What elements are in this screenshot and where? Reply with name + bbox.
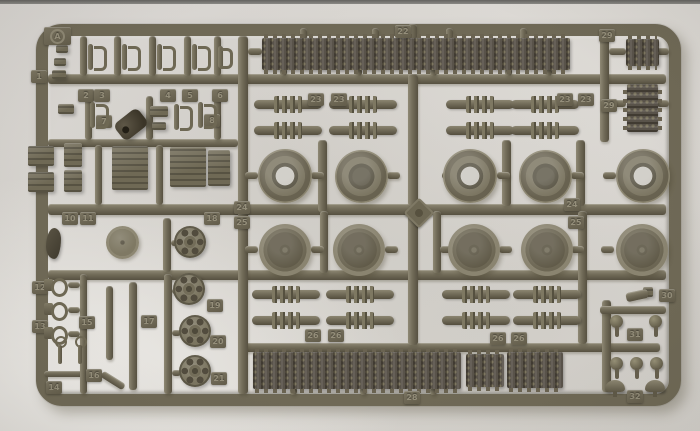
part-number-tab: 10	[62, 212, 78, 225]
sprocket-wheel	[179, 315, 211, 347]
part-number-tab: 32	[627, 390, 643, 403]
road-wheel-dish	[333, 224, 385, 276]
ball-pin-part	[610, 357, 623, 370]
small-bracket-part	[120, 42, 142, 72]
part-number-tab: 24	[234, 201, 250, 214]
stowage-box-part	[170, 147, 206, 187]
sprue-runner	[146, 96, 153, 140]
sprue-runner	[320, 211, 328, 273]
part-number-tab: 23	[308, 93, 324, 106]
ball-pin-part	[630, 357, 643, 370]
track-section	[262, 38, 570, 70]
dome-cap-part	[605, 380, 625, 392]
stowage-box-part	[152, 122, 166, 130]
part-number-tab: 11	[80, 212, 96, 225]
track-section	[507, 352, 563, 388]
road-wheel-dish	[616, 224, 668, 276]
sprue-runner	[609, 48, 626, 55]
suspension-arm	[513, 290, 581, 299]
part-number-tab: 23	[331, 93, 347, 106]
track-section	[253, 352, 461, 389]
suspension-arm	[254, 126, 322, 135]
stowage-box-part	[56, 45, 68, 53]
sprocket-wheel	[179, 355, 211, 387]
part-number-tab: 26	[305, 329, 321, 342]
road-wheel-outer	[443, 149, 497, 203]
loop-pin-part	[74, 336, 85, 364]
part-number-tab: 14	[46, 381, 62, 394]
dome-cap-part	[645, 380, 665, 392]
sprue-runner	[245, 172, 258, 179]
part-number-tab: 25	[568, 216, 584, 229]
sprue-runner	[95, 145, 102, 205]
part-number-tab: 22	[395, 25, 411, 38]
part-number-tab: 4	[160, 89, 176, 102]
sprue-letter: A	[50, 29, 65, 44]
sprue-runner	[600, 306, 666, 314]
sprue-runner	[603, 172, 616, 179]
sprue-letter-tab: A	[44, 27, 71, 45]
sprue-runner	[600, 36, 609, 142]
small-bracket-part	[196, 100, 218, 130]
stowage-box-part	[28, 146, 54, 166]
small-bracket-part	[172, 102, 194, 132]
idler-wheel	[106, 226, 139, 259]
suspension-arm	[329, 126, 397, 135]
rod-part	[106, 286, 113, 360]
sprue-runner	[156, 145, 163, 205]
rod-part	[129, 282, 137, 390]
part-number-tab: 19	[207, 299, 223, 312]
ball-pin-part	[649, 315, 662, 328]
part-number-tab: 21	[211, 372, 227, 385]
part-number-tab: 24	[564, 198, 580, 211]
sprue-photo-scene: A123456789101118121314151617192021222323…	[0, 0, 700, 431]
sprue-runner	[164, 274, 172, 394]
part-number-tab: 17	[141, 315, 157, 328]
stowage-box-part	[150, 106, 168, 117]
part-number-tab: 16	[86, 369, 102, 382]
road-wheel-outer	[519, 150, 572, 203]
small-bracket-part	[86, 42, 108, 72]
loop-pin-part	[54, 336, 65, 364]
part-number-tab: 26	[511, 332, 527, 345]
sprue-runner	[248, 48, 262, 55]
ball-pin-part	[650, 357, 663, 370]
part-number-tab: 31	[627, 328, 643, 341]
stowage-box-part	[112, 146, 148, 190]
suspension-arm	[326, 290, 394, 299]
stowage-box-part	[64, 143, 82, 167]
sprue-runner	[497, 172, 510, 179]
part-number-tab: 23	[578, 93, 594, 106]
suspension-arm	[252, 316, 320, 325]
road-wheel-outer	[616, 149, 670, 203]
sprue-runner	[499, 246, 512, 253]
suspension-arm	[442, 290, 510, 299]
road-wheel-outer	[258, 149, 312, 203]
sprue-runner	[163, 218, 171, 272]
sprue-runner	[601, 246, 614, 253]
part-number-tab: 25	[234, 216, 250, 229]
part-number-tab: 30	[659, 289, 675, 302]
suspension-arm	[446, 100, 514, 109]
suspension-arm	[511, 126, 579, 135]
part-number-tab: 1	[31, 70, 47, 83]
part-number-tab: 18	[204, 212, 220, 225]
road-wheel-dish	[521, 224, 573, 276]
sprue-runner	[571, 172, 584, 179]
sprue-runner	[578, 211, 587, 344]
track-section	[466, 354, 504, 387]
suspension-arm	[326, 316, 394, 325]
stowage-box-part	[64, 170, 82, 192]
suspension-arm	[252, 290, 320, 299]
road-wheel-outer	[335, 150, 388, 203]
stowage-box-part	[54, 58, 66, 66]
sprue-runner	[387, 172, 400, 179]
road-wheel-dish	[259, 224, 311, 276]
suspension-arm	[442, 316, 510, 325]
sprue-runner	[311, 172, 324, 179]
stowage-box-part	[28, 172, 54, 192]
tow-shackle-part	[44, 276, 70, 296]
stowage-box-part	[58, 104, 74, 114]
sprue-runner	[245, 246, 258, 253]
road-wheel-dish	[448, 224, 500, 276]
sprue-runner	[311, 246, 324, 253]
part-number-tab: 26	[490, 332, 506, 345]
part-number-tab: 20	[210, 335, 226, 348]
part-number-tab: 26	[328, 329, 344, 342]
small-bracket-part	[216, 44, 234, 70]
small-bracket-part	[88, 100, 110, 130]
suspension-arm	[513, 316, 581, 325]
stowage-box-part	[208, 150, 230, 186]
sprue-runner	[408, 215, 418, 345]
photo-edge-strip	[0, 0, 700, 4]
track-section	[627, 84, 658, 132]
part-number-tab: 29	[601, 99, 617, 112]
part-number-tab: 23	[557, 93, 573, 106]
sprocket-wheel	[173, 273, 205, 305]
sprue-runner	[385, 246, 398, 253]
small-bracket-part	[155, 42, 177, 72]
stowage-box-part	[52, 70, 66, 79]
ball-pin-part	[610, 315, 623, 328]
sprocket-wheel	[174, 226, 206, 258]
part-number-tab: 15	[79, 316, 95, 329]
part-number-tab: 28	[404, 391, 420, 404]
sprue-runner	[433, 211, 441, 273]
sprue-runner	[408, 74, 418, 206]
suspension-arm	[446, 126, 514, 135]
small-bracket-part	[190, 42, 212, 72]
part-number-tab: 29	[599, 29, 615, 42]
tow-shackle-part	[44, 300, 70, 320]
track-section	[626, 39, 659, 66]
sprue-runner	[238, 36, 248, 394]
